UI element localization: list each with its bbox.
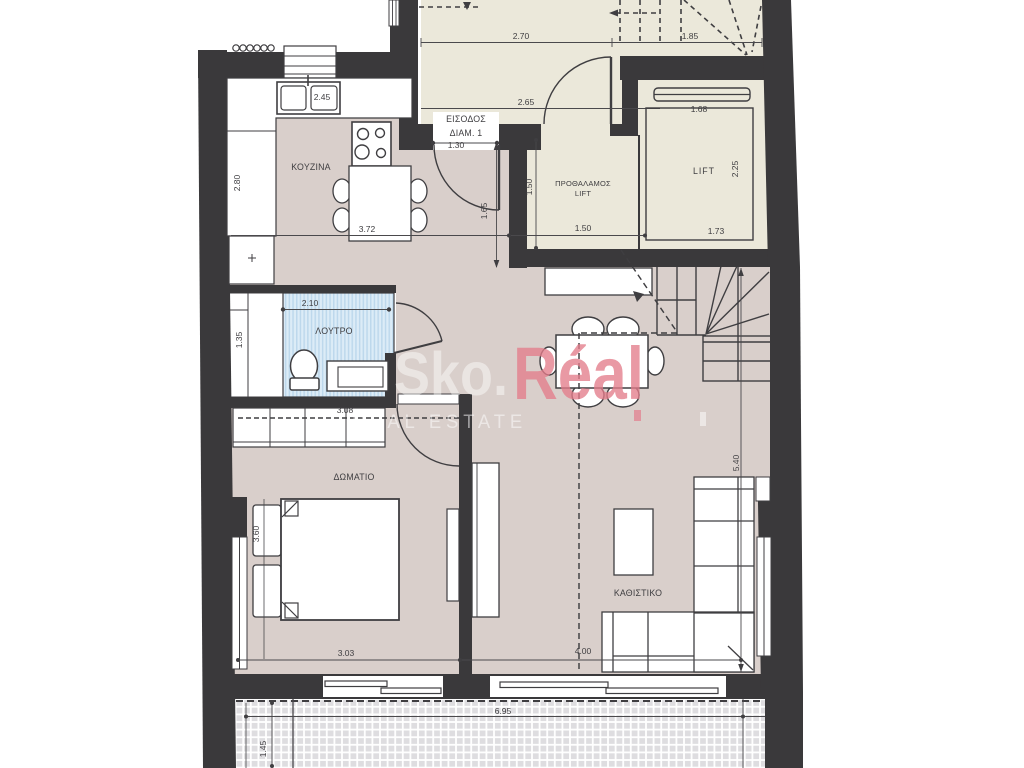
svg-text:6.95: 6.95 bbox=[495, 706, 512, 716]
svg-text:LIFT: LIFT bbox=[693, 166, 715, 176]
svg-text:Sko.: Sko. bbox=[394, 340, 508, 408]
svg-text:ΕΙΣΟΔΟΣ: ΕΙΣΟΔΟΣ bbox=[446, 114, 486, 124]
svg-text:LIFT: LIFT bbox=[575, 189, 591, 198]
svg-text:1.65: 1.65 bbox=[479, 202, 489, 219]
svg-text:2.10: 2.10 bbox=[302, 298, 319, 308]
svg-text:ΚΑΘΙΣΤΙΚΟ: ΚΑΘΙΣΤΙΚΟ bbox=[614, 588, 662, 598]
svg-text:ΛΟΥΤΡΟ: ΛΟΥΤΡΟ bbox=[315, 326, 352, 336]
svg-text:ΔΙΑΜ. 1: ΔΙΑΜ. 1 bbox=[450, 128, 483, 138]
svg-text:2.65: 2.65 bbox=[518, 97, 535, 107]
svg-text:1.85: 1.85 bbox=[682, 31, 699, 41]
svg-text:1.35: 1.35 bbox=[234, 331, 244, 348]
svg-text:2.45: 2.45 bbox=[314, 92, 331, 102]
svg-text:ΔΩΜΑΤΙΟ: ΔΩΜΑΤΙΟ bbox=[333, 472, 374, 482]
svg-text:2.70: 2.70 bbox=[513, 31, 530, 41]
svg-text:2.25: 2.25 bbox=[730, 160, 740, 177]
svg-text:2.80: 2.80 bbox=[232, 174, 242, 191]
svg-text:ΚΟΥΖΙΝΑ: ΚΟΥΖΙΝΑ bbox=[291, 162, 330, 172]
svg-text:5.40: 5.40 bbox=[731, 454, 741, 471]
svg-text:ΠΡΟΘΑΛΑΜΟΣ: ΠΡΟΘΑΛΑΜΟΣ bbox=[555, 179, 611, 188]
svg-text:4.00: 4.00 bbox=[575, 646, 592, 656]
svg-text:Réal: Réal bbox=[513, 332, 644, 415]
svg-text:1.68: 1.68 bbox=[691, 104, 708, 114]
svg-text:1.30: 1.30 bbox=[448, 140, 465, 150]
svg-text:1.50: 1.50 bbox=[524, 178, 534, 195]
svg-text:REAL ESTATE: REAL ESTATE bbox=[352, 412, 527, 433]
svg-text:3.72: 3.72 bbox=[359, 224, 376, 234]
svg-text:3.03: 3.03 bbox=[338, 648, 355, 658]
svg-text:1.73: 1.73 bbox=[708, 226, 725, 236]
svg-text:1.45: 1.45 bbox=[258, 740, 268, 757]
svg-text:3.60: 3.60 bbox=[251, 525, 261, 542]
svg-text:1.50: 1.50 bbox=[575, 223, 592, 233]
